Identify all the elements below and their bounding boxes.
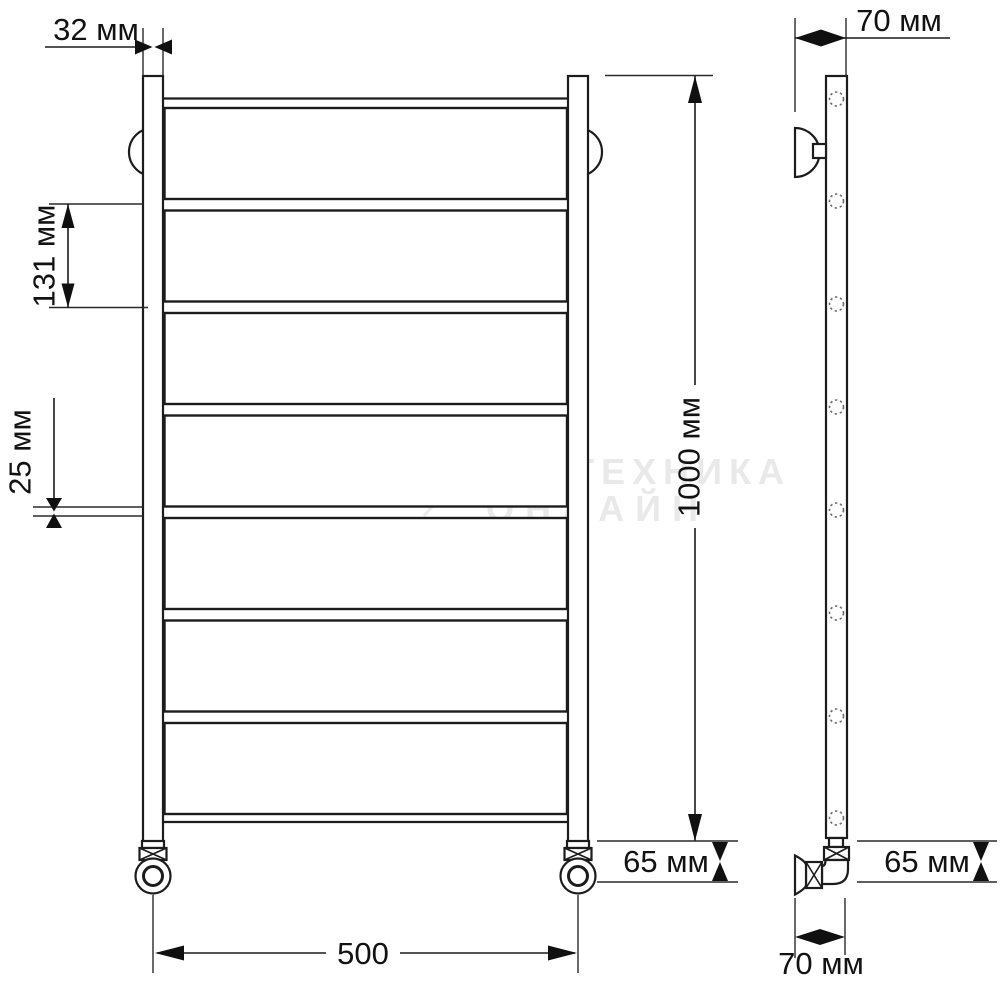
dim-label-65mm-right: 65 мм: [884, 844, 970, 879]
rung-rect: [165, 518, 568, 609]
dim-label-1000mm: 1000 мм: [672, 397, 707, 517]
vertical-pipe-right: [568, 76, 588, 842]
drawing-canvas: САНТЕХНИКА ОНЛАЙН: [0, 0, 1003, 1000]
dim-label-65mm-left: 65 мм: [623, 844, 709, 879]
dim-65mm-right: 65 мм: [857, 841, 997, 882]
bottom-fitting-right: [561, 841, 596, 894]
vertical-pipe-left: [143, 76, 163, 842]
dim-label-25mm: 25 мм: [3, 409, 38, 495]
rung-rect: [165, 723, 568, 814]
dim-70mm-top: 70 мм: [795, 3, 950, 112]
rung-rect: [165, 416, 568, 507]
bottom-elbow-assembly: [795, 838, 849, 895]
rung-rect: [165, 108, 568, 199]
wall-bracket-side: [795, 128, 826, 177]
dim-label-70mm-top: 70 мм: [856, 3, 942, 38]
rung-rect: [165, 621, 568, 712]
dim-label-32mm: 32 мм: [53, 12, 139, 47]
dim-131mm: 131 мм: [27, 204, 149, 308]
dim-70mm-bottom: 70 мм: [778, 898, 864, 981]
side-view: [795, 76, 849, 895]
dim-65mm-left: 65 мм: [597, 841, 738, 882]
dim-32mm: 32 мм: [45, 12, 172, 76]
bottom-fitting-left: [136, 841, 171, 894]
rung-rect: [165, 313, 568, 404]
dim-25mm: 25 мм: [3, 398, 144, 528]
rung-rect: [165, 211, 568, 302]
dim-label-70mm-bottom: 70 мм: [778, 946, 864, 981]
front-view: [129, 76, 602, 894]
dim-500mm: 500: [153, 895, 578, 973]
dim-label-500: 500: [337, 936, 389, 971]
dim-label-131mm: 131 мм: [27, 205, 62, 308]
